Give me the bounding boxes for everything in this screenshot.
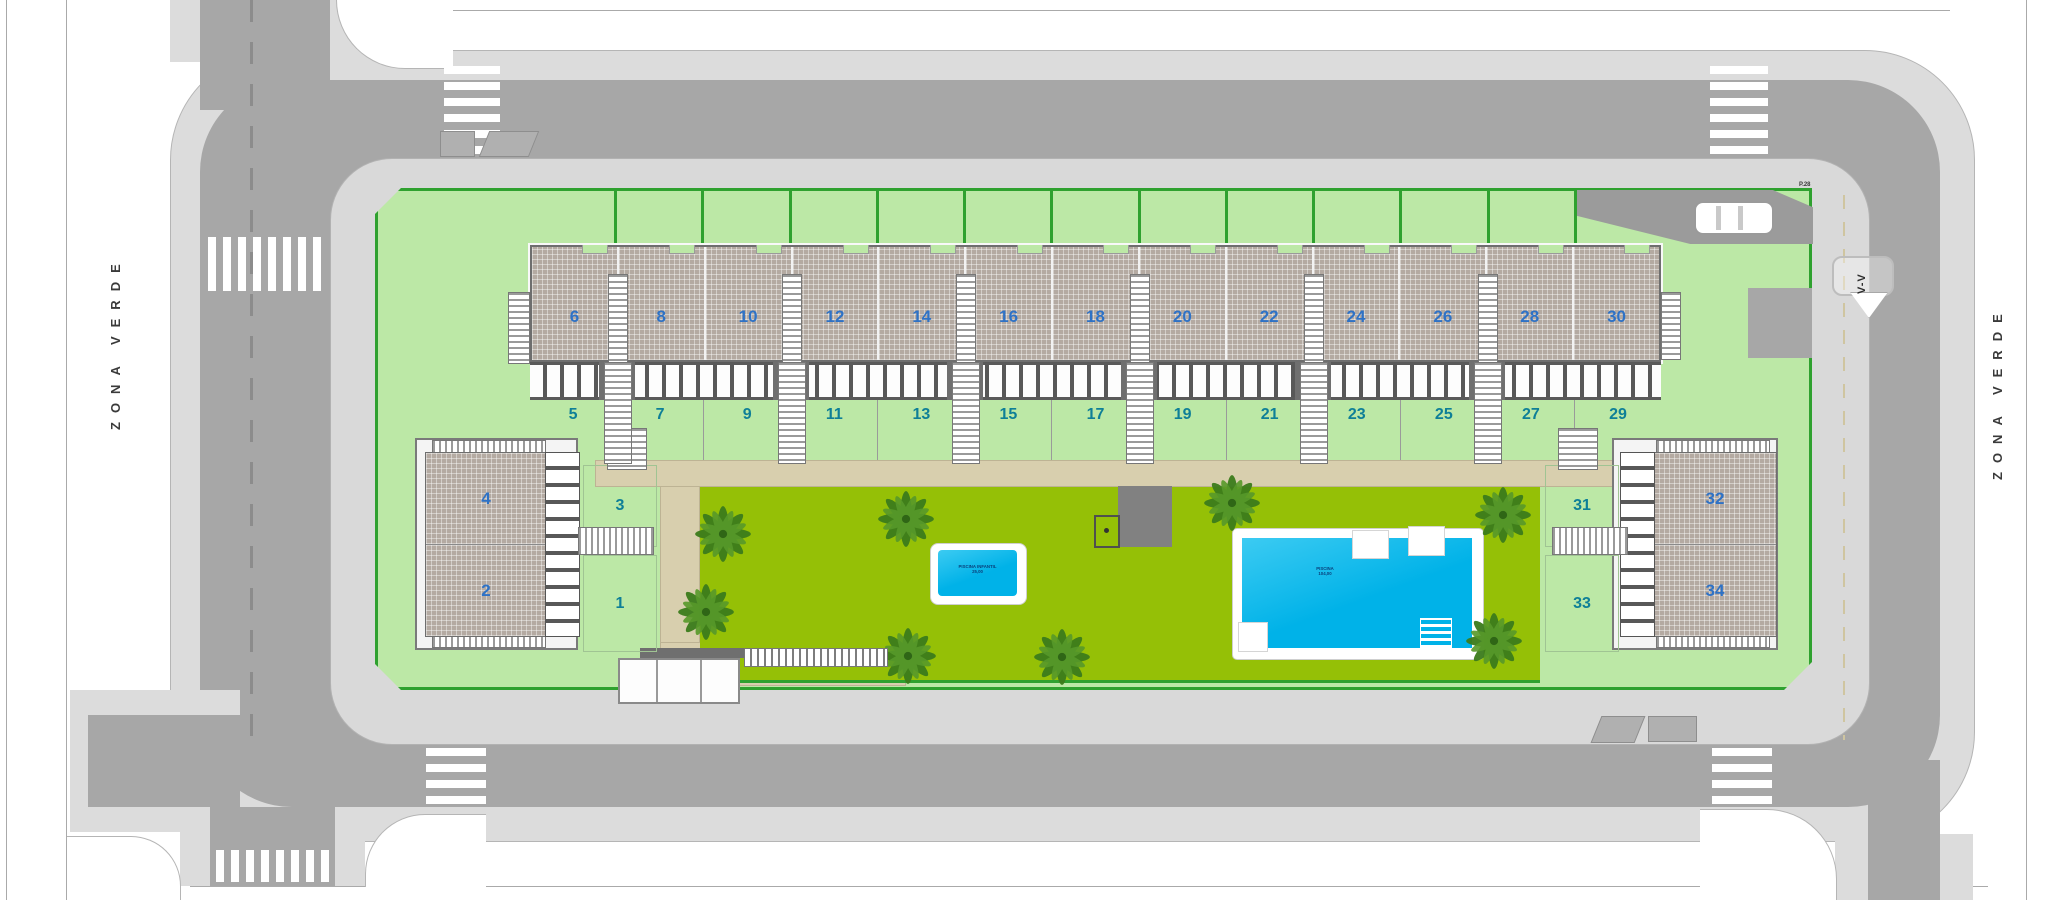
zebra-crossing bbox=[1712, 746, 1772, 804]
stairwell bbox=[1130, 274, 1150, 364]
roof-notch bbox=[1017, 245, 1043, 254]
page-border-line bbox=[66, 0, 67, 900]
unit-number: 33 bbox=[1573, 595, 1591, 613]
left-building: 4 2 bbox=[425, 452, 547, 637]
building-unit: 34 bbox=[1654, 544, 1776, 636]
zebra-crossing bbox=[208, 237, 328, 291]
roof-notch bbox=[1277, 245, 1303, 254]
unit-number: 27 bbox=[1522, 406, 1540, 460]
zebra-crossing bbox=[216, 850, 330, 882]
roof-notch bbox=[1190, 245, 1216, 254]
unit-number: 20 bbox=[1173, 307, 1192, 327]
garden-plot bbox=[1487, 191, 1574, 245]
unit-number: 19 bbox=[1174, 406, 1192, 460]
house-unit: 28 bbox=[1485, 247, 1572, 360]
stair-walkway bbox=[778, 362, 806, 464]
road-centerline bbox=[250, 0, 253, 738]
garden-plot bbox=[1399, 191, 1486, 245]
car-icon bbox=[1694, 201, 1774, 235]
palm-tree-icon bbox=[1461, 608, 1527, 674]
unit-number: 2 bbox=[481, 581, 490, 601]
building-unit: 2 bbox=[426, 544, 546, 636]
unit-number: 21 bbox=[1261, 406, 1279, 460]
garden-plot bbox=[530, 191, 614, 245]
stairwell bbox=[1478, 274, 1498, 364]
building-unit: 4 bbox=[426, 453, 546, 544]
unit-number: 16 bbox=[999, 307, 1018, 327]
pool-steps bbox=[1420, 618, 1452, 649]
house-unit: 20 bbox=[1138, 247, 1225, 360]
entrance-canopy bbox=[618, 658, 740, 704]
unit-number: 23 bbox=[1348, 406, 1366, 460]
sidewalk-strip bbox=[170, 0, 200, 62]
palm-tree-icon bbox=[1470, 482, 1536, 548]
end-stair bbox=[1661, 292, 1681, 360]
section-marker-label: V-V bbox=[1856, 258, 1868, 294]
stair-walkway bbox=[1558, 428, 1598, 470]
house-unit: 6 bbox=[532, 247, 617, 360]
palm-tree-icon bbox=[690, 501, 756, 567]
house-unit: 16 bbox=[964, 247, 1051, 360]
garden-plot bbox=[1050, 191, 1137, 245]
unit-number: 1 bbox=[616, 595, 625, 613]
unit-number: 17 bbox=[1087, 406, 1105, 460]
house-unit: 12 bbox=[791, 247, 878, 360]
unit-number: 4 bbox=[481, 489, 490, 509]
corner-cutout bbox=[67, 836, 181, 900]
kerb-ramp bbox=[440, 131, 475, 157]
unit-number: 7 bbox=[656, 406, 665, 460]
stair-walkway bbox=[578, 527, 654, 555]
page-border-line bbox=[6, 0, 7, 900]
garden-plot bbox=[1312, 191, 1399, 245]
house-unit: 26 bbox=[1398, 247, 1485, 360]
page-border-line bbox=[2026, 0, 2027, 900]
unit-number: 25 bbox=[1435, 406, 1453, 460]
unit-number: 22 bbox=[1260, 307, 1279, 327]
zona-verde-label-left: ZONA VERDE bbox=[108, 250, 123, 430]
kerb-ramp bbox=[479, 131, 540, 157]
kids-pool-label: PISCINA INFANTIL 25,00 bbox=[949, 565, 1006, 575]
service-platform bbox=[1118, 486, 1172, 547]
main-pool-label: PISCINA 104,00 bbox=[1293, 567, 1358, 577]
roof-notch bbox=[1451, 245, 1477, 254]
roof-notch bbox=[930, 245, 956, 254]
road-arm-west bbox=[88, 715, 240, 807]
sidewalk-strip bbox=[335, 807, 365, 886]
stair-walkway bbox=[1474, 362, 1502, 464]
unit-number: 34 bbox=[1706, 581, 1725, 601]
unit-number: 32 bbox=[1706, 489, 1725, 509]
driveway-stub bbox=[1748, 288, 1812, 358]
garden-plot bbox=[1225, 191, 1312, 245]
page-border-line bbox=[190, 10, 1950, 11]
roof-notch bbox=[756, 245, 782, 254]
building-unit: 32 bbox=[1654, 453, 1776, 544]
garden-plot bbox=[701, 191, 788, 245]
communal-path bbox=[595, 460, 1615, 487]
plot-box: 1 bbox=[583, 555, 657, 652]
unit-number: 12 bbox=[825, 307, 844, 327]
palm-tree-icon bbox=[1029, 624, 1095, 690]
stairwell bbox=[782, 274, 802, 364]
unit-number: 28 bbox=[1520, 307, 1539, 327]
house-unit: 14 bbox=[877, 247, 964, 360]
zebra-crossing bbox=[1710, 62, 1768, 154]
unit-number: 8 bbox=[657, 307, 666, 327]
house-unit: 8 bbox=[617, 247, 704, 360]
house-unit: 30 bbox=[1572, 247, 1659, 360]
palm-tree-icon bbox=[1199, 470, 1265, 536]
pool-ledge bbox=[1408, 526, 1445, 556]
right-building: 32 34 bbox=[1653, 452, 1777, 637]
roof-notch bbox=[1103, 245, 1129, 254]
corner-label: P.28 bbox=[1799, 182, 1810, 188]
garden-plot bbox=[876, 191, 963, 245]
unit-number: 26 bbox=[1433, 307, 1452, 327]
house-unit: 10 bbox=[704, 247, 791, 360]
garden-plot bbox=[1138, 191, 1225, 245]
stair-walkway bbox=[952, 362, 980, 464]
stair-walkway bbox=[1300, 362, 1328, 464]
sidewalk-strip bbox=[180, 807, 210, 886]
car-window bbox=[1738, 206, 1743, 230]
pool-ledge bbox=[1352, 530, 1389, 559]
unit-number: 24 bbox=[1347, 307, 1366, 327]
roof-notch bbox=[669, 245, 695, 254]
unit-number: 9 bbox=[743, 406, 752, 460]
sidewalk-strip bbox=[1940, 834, 1973, 900]
front-garden-plots bbox=[530, 191, 1661, 245]
unit-number: 14 bbox=[912, 307, 931, 327]
zona-verde-label-right: ZONA VERDE bbox=[1990, 300, 2005, 480]
roof-notch bbox=[843, 245, 869, 254]
main-pool-area: 104,00 bbox=[1293, 572, 1358, 577]
house-unit: 22 bbox=[1225, 247, 1312, 360]
kids-pool-area: 25,00 bbox=[949, 570, 1006, 575]
stairwell bbox=[1304, 274, 1324, 364]
palm-tree-icon bbox=[873, 486, 939, 552]
unit-number: 6 bbox=[570, 307, 579, 327]
zebra-crossing bbox=[426, 746, 486, 804]
unit-number: 3 bbox=[616, 497, 625, 515]
palm-tree-icon bbox=[673, 579, 739, 645]
unit-number: 15 bbox=[1000, 406, 1018, 460]
end-stair bbox=[508, 292, 530, 364]
garden-plot bbox=[963, 191, 1050, 245]
unit-number: 30 bbox=[1607, 307, 1626, 327]
garden-plot bbox=[614, 191, 701, 245]
road-stub-southeast bbox=[1868, 760, 1940, 900]
house-unit: 24 bbox=[1312, 247, 1399, 360]
roof-notch bbox=[1538, 245, 1564, 254]
kerb-ramp bbox=[1648, 716, 1697, 742]
house-unit: 18 bbox=[1051, 247, 1138, 360]
sidewalk-strip bbox=[1835, 834, 1868, 900]
car-window bbox=[1716, 206, 1721, 230]
unit-number: 13 bbox=[912, 406, 930, 460]
equipment-box bbox=[1094, 515, 1120, 548]
roof-notch bbox=[1624, 245, 1650, 254]
unit-number: 10 bbox=[739, 307, 758, 327]
roof-notch bbox=[1364, 245, 1390, 254]
garden-plot bbox=[789, 191, 876, 245]
unit-number: 11 bbox=[826, 406, 843, 460]
roof-notch bbox=[582, 245, 608, 254]
stair-walkway bbox=[604, 362, 632, 464]
plot-box: 33 bbox=[1545, 555, 1619, 652]
unit-number: 31 bbox=[1573, 497, 1591, 515]
unit-number: 18 bbox=[1086, 307, 1105, 327]
site-plan-canvas: ZONA VERDE ZONA VERDE 6 8 10 12 14 16 18 bbox=[0, 0, 2048, 900]
stair-walkway bbox=[1126, 362, 1154, 464]
terrace-column bbox=[545, 452, 580, 637]
road-stub-north bbox=[200, 0, 330, 110]
stair-walkway bbox=[1552, 527, 1628, 555]
stairwell bbox=[608, 274, 628, 364]
bike-rack-row bbox=[744, 648, 888, 667]
stairwell bbox=[956, 274, 976, 364]
pool-ledge bbox=[1238, 622, 1268, 652]
